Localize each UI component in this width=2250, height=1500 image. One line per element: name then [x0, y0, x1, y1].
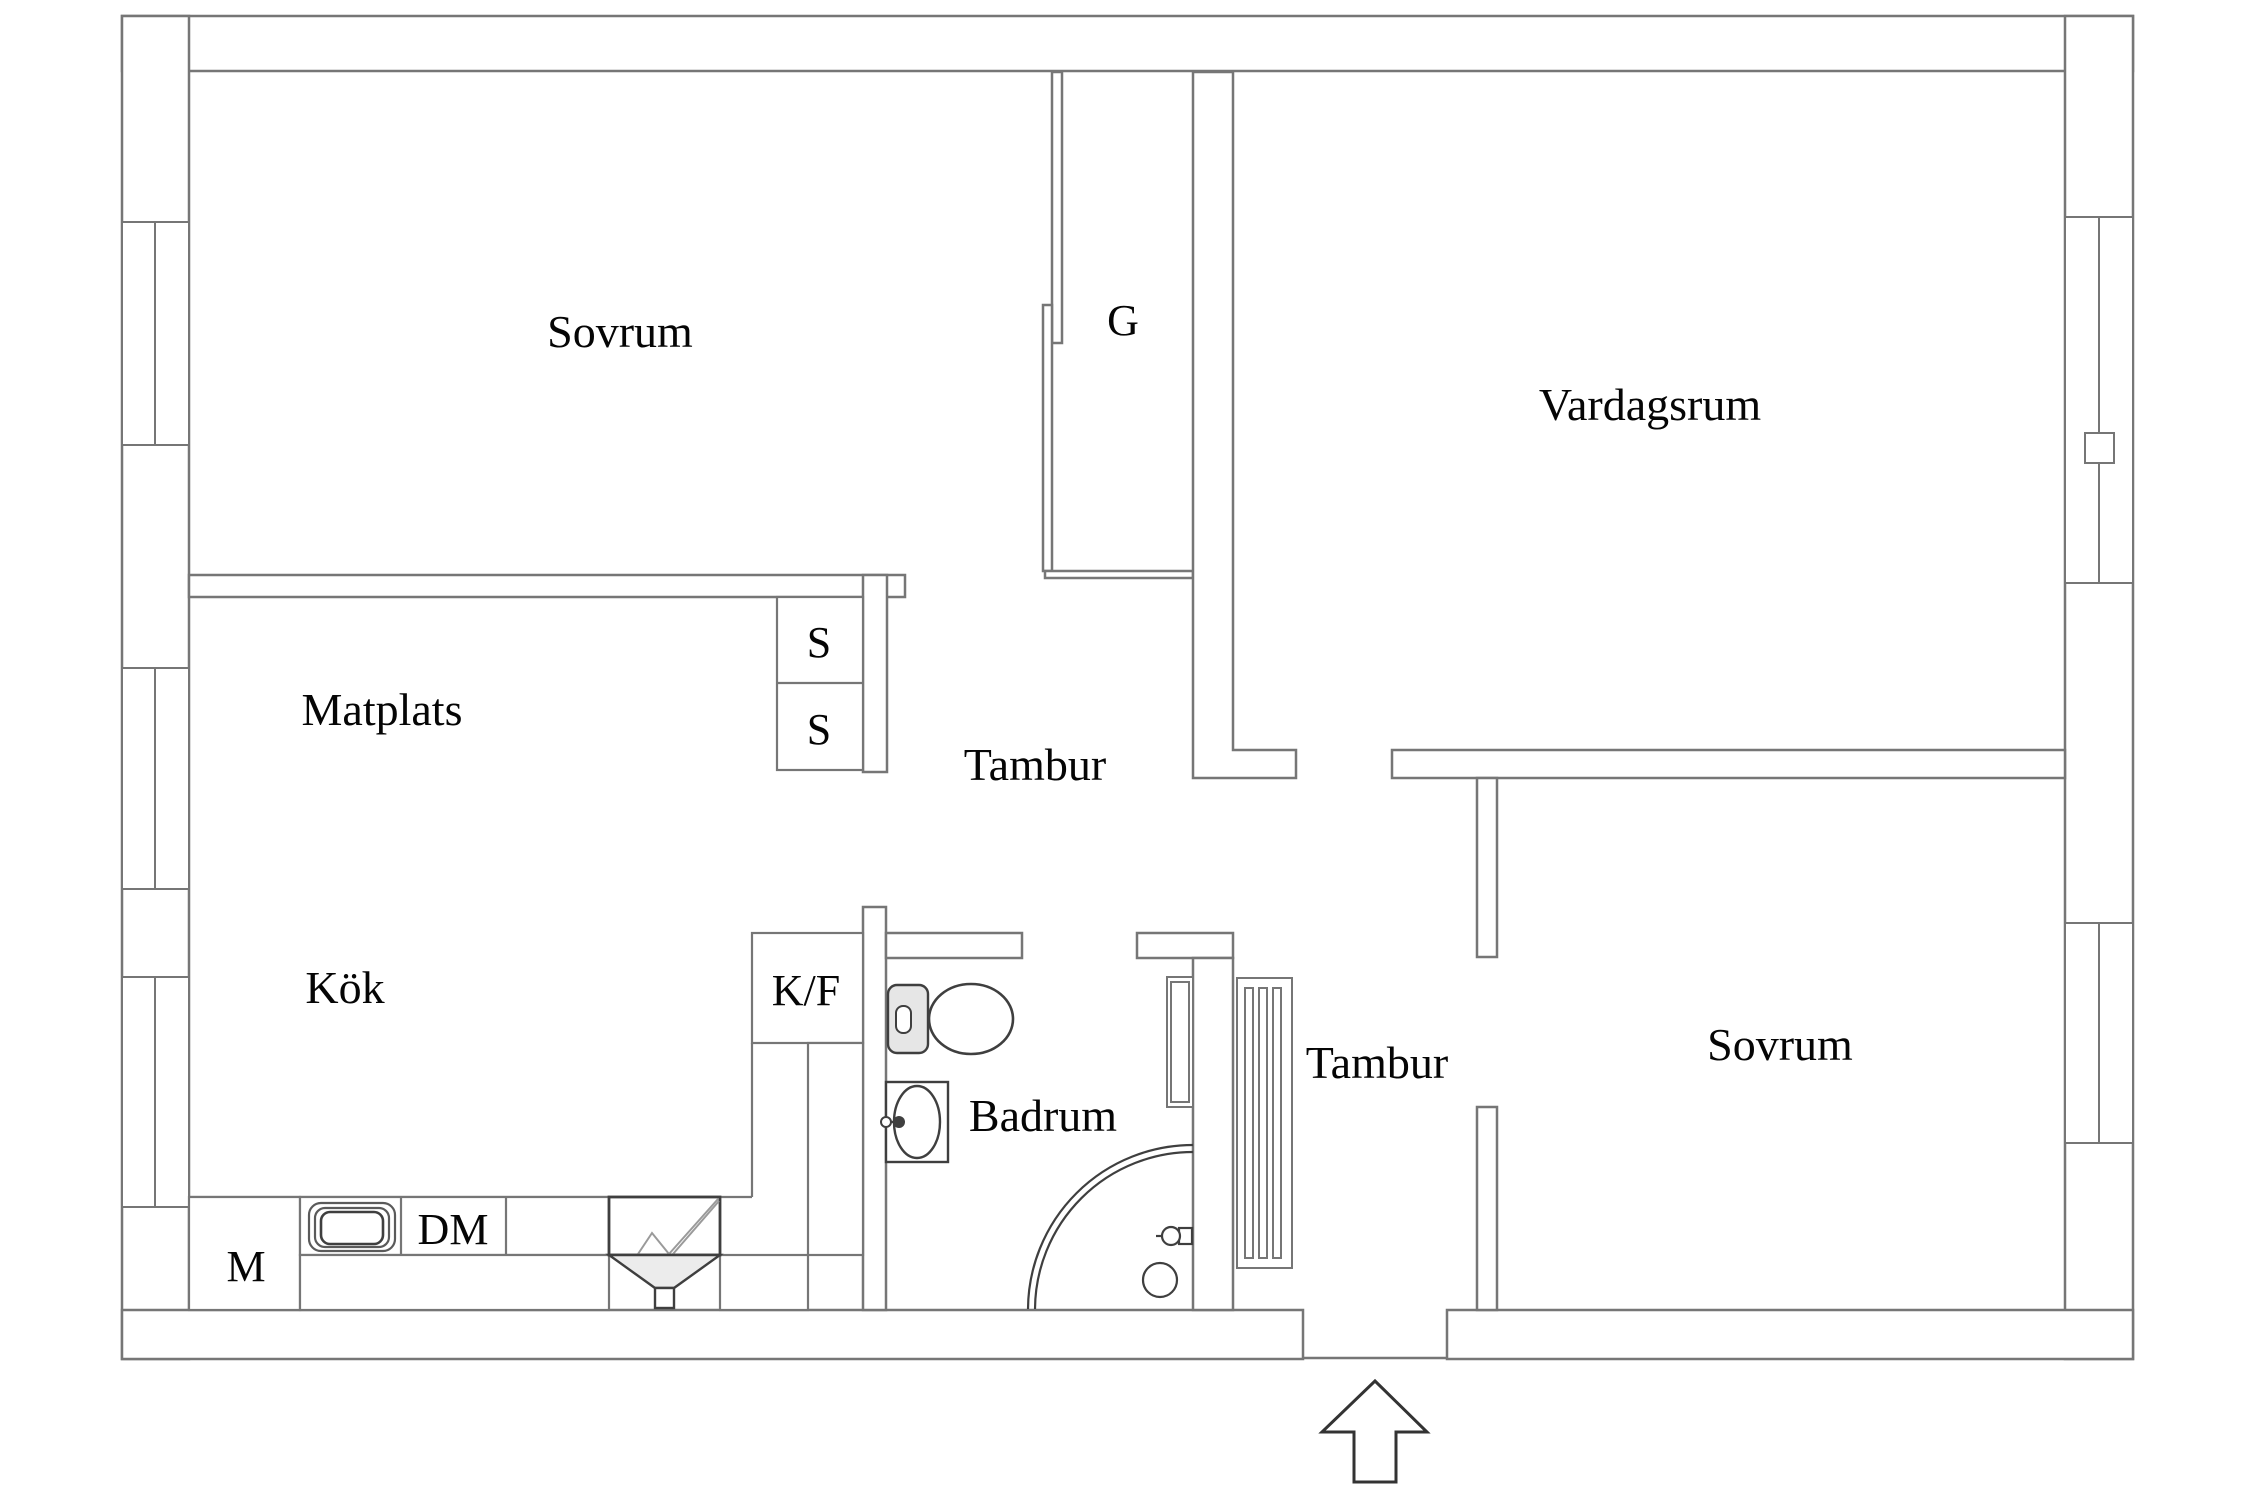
wall-sliding-panel-leaf [1043, 305, 1052, 571]
wall-sovrum1-matplats [189, 575, 905, 597]
label-sovrum1: Sovrum [547, 306, 693, 357]
label-tambur2: Tambur [1306, 1037, 1448, 1088]
fitments [189, 597, 863, 1310]
label-closet-s2: S [807, 705, 831, 754]
label-vardagsrum: Vardagsrum [1539, 379, 1761, 430]
radiator-icon [1237, 978, 1292, 1268]
wall-badrum-top-left [886, 933, 1022, 958]
wall-g-closet-bottom [1045, 571, 1193, 578]
window-symbol [122, 668, 189, 889]
wall-vardagsrum-bottom [1392, 750, 2065, 778]
label-diskmaskin: DM [418, 1205, 489, 1254]
shower-head [1156, 1227, 1192, 1245]
label-maskin: M [226, 1242, 265, 1291]
wall-bottom-right [1447, 1310, 2133, 1359]
wall-badrum-top-right [1137, 933, 1233, 958]
worktop-right-band [720, 1255, 808, 1310]
label-closet-s1: S [807, 618, 831, 667]
wall-tambur-sovrum2-stub [1477, 778, 1497, 957]
window-vent-handle [2085, 433, 2114, 463]
floor-plan: Sovrum G Vardagsrum Matplats S S Tambur … [0, 0, 2250, 1500]
floor-plan-canvas: Sovrum G Vardagsrum Matplats S S Tambur … [0, 0, 2250, 1500]
toilet-icon [888, 984, 1013, 1054]
extractor-funnel [609, 1255, 720, 1288]
shower-drain [1143, 1263, 1177, 1297]
entrance-arrow-icon [1322, 1381, 1427, 1482]
window-symbol [2065, 217, 2133, 583]
wall-sovrum2-left-lower [1477, 1107, 1497, 1310]
wall-top [122, 16, 2133, 71]
extractor-stem [655, 1288, 674, 1308]
label-kyl-frys: K/F [772, 966, 840, 1015]
wall-sliding-panel-fixed [1052, 72, 1062, 343]
wall-kok-badrum [863, 907, 886, 1310]
window-symbol [122, 222, 189, 445]
label-matplats: Matplats [302, 684, 463, 735]
wall-bottom-left [122, 1310, 1303, 1359]
label-tambur1: Tambur [964, 739, 1106, 790]
wall-vardagsrum-left [1193, 72, 1296, 778]
interior-walls [189, 72, 2065, 1310]
cabinet-tall [808, 1043, 863, 1255]
wall-badrum-right [1193, 958, 1233, 1310]
label-sovrum2: Sovrum [1707, 1019, 1853, 1070]
window-symbol [122, 977, 189, 1207]
worktop-lower-band [300, 1255, 609, 1310]
label-garderob: G [1107, 296, 1139, 345]
shower-corner-icon [1028, 1145, 1193, 1309]
label-badrum: Badrum [969, 1090, 1117, 1141]
label-kok: Kök [305, 962, 384, 1013]
stove-icon [609, 1197, 720, 1308]
washbasin-icon [881, 1082, 948, 1162]
wall-niche [1167, 977, 1193, 1107]
kitchen-sink-icon [309, 1203, 395, 1251]
window-symbol [2065, 923, 2133, 1143]
wall-kok-tambur [863, 575, 887, 772]
